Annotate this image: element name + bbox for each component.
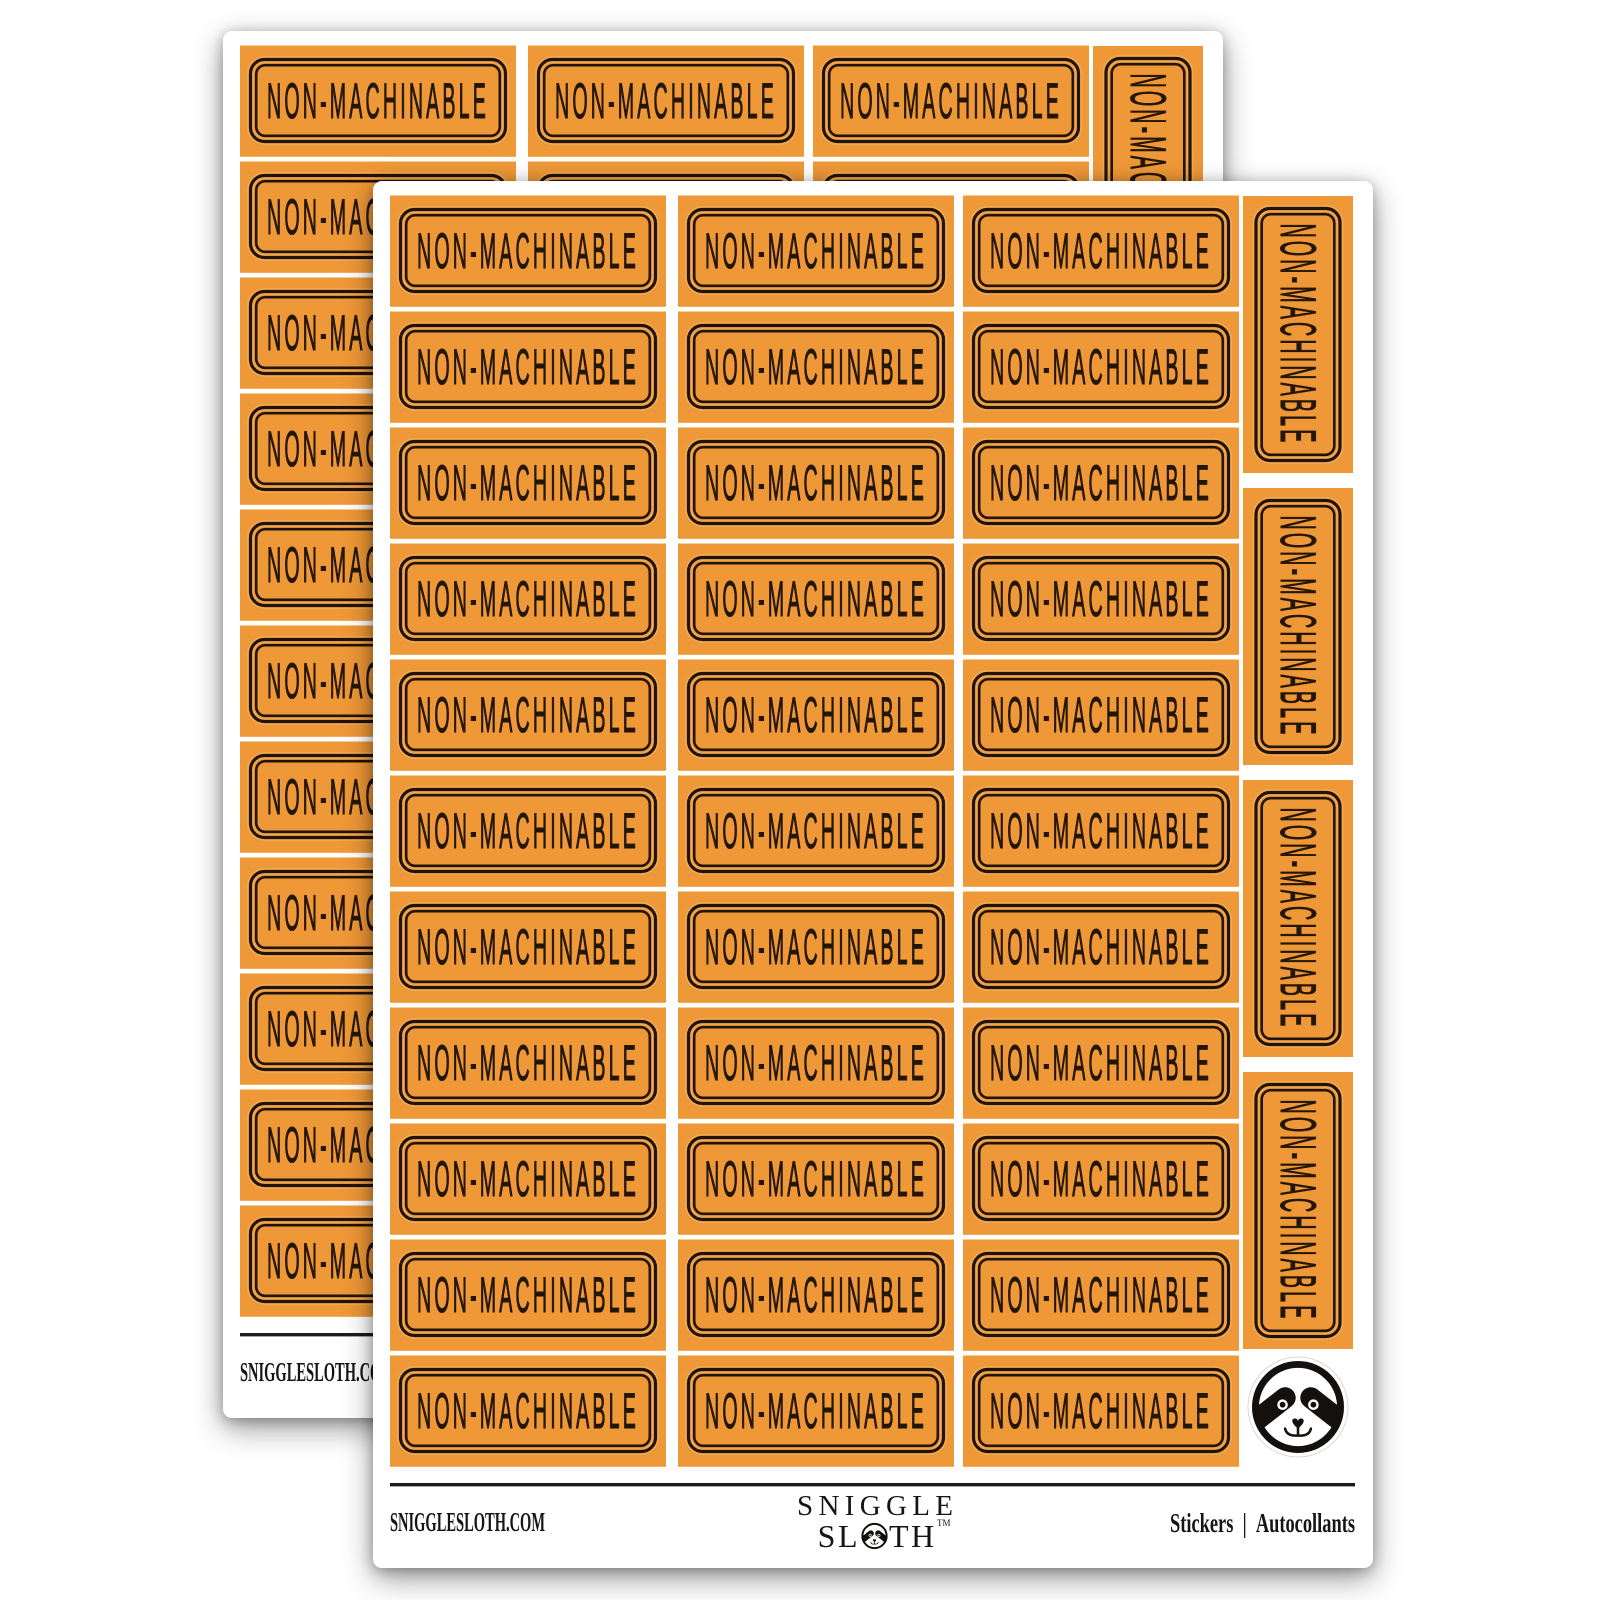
svg-text:TH: TH — [889, 1518, 937, 1554]
svg-text:TM: TM — [937, 1518, 951, 1528]
svg-text:SL: SL — [818, 1518, 860, 1554]
svg-text:SNIGGLESLOTH.COM: SNIGGLESLOTH.COM — [390, 1507, 545, 1537]
svg-text:SNIGGLESLOTH.COM: SNIGGLESLOTH.COM — [240, 1357, 395, 1387]
svg-text:Stickers | Autocollants: Stickers | Autocollants — [1170, 1508, 1355, 1538]
